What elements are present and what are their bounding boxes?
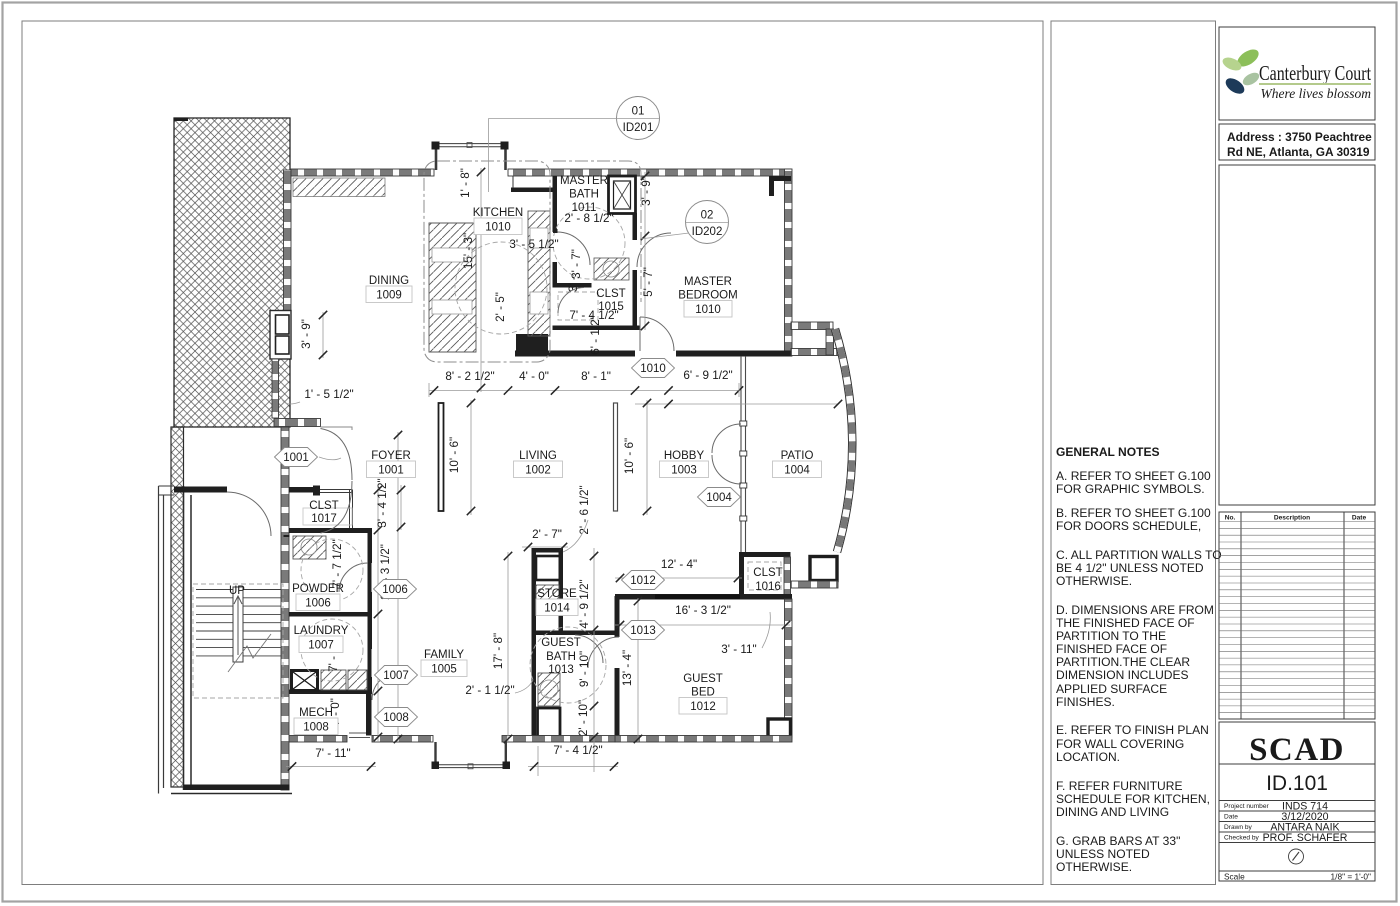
svg-text:6' - 1/2": 6' - 1/2" <box>589 315 602 355</box>
svg-text:1008: 1008 <box>383 712 409 724</box>
svg-text:4' - 9 1/2": 4' - 9 1/2" <box>578 579 591 628</box>
svg-text:1010: 1010 <box>485 222 511 234</box>
svg-text:ID201: ID201 <box>623 122 654 134</box>
svg-text:FOYER: FOYER <box>371 450 411 462</box>
svg-text:13' - 4": 13' - 4" <box>621 650 634 686</box>
svg-text:OTHERWISE.: OTHERWISE. <box>1056 574 1132 588</box>
svg-text:PARTITION.THE CLEAR: PARTITION.THE CLEAR <box>1056 655 1190 669</box>
svg-text:1011: 1011 <box>572 202 597 214</box>
svg-text:MASTER: MASTER <box>684 276 732 288</box>
svg-text:12' - 4": 12' - 4" <box>661 558 697 571</box>
svg-text:8' - 1": 8' - 1" <box>581 370 611 383</box>
svg-text:1005: 1005 <box>431 664 457 676</box>
svg-text:Address : 3750 Peachtree: Address : 3750 Peachtree <box>1227 130 1372 144</box>
svg-text:5' - 7": 5' - 7" <box>642 267 655 297</box>
svg-text:B. REFER TO SHEET G.100: B. REFER TO SHEET G.100 <box>1056 506 1211 520</box>
svg-text:BEDROOM: BEDROOM <box>678 290 737 302</box>
svg-text:FOR DOORS SCHEDULE,: FOR DOORS SCHEDULE, <box>1056 519 1201 533</box>
svg-text:1009: 1009 <box>376 290 402 302</box>
svg-text:GUEST: GUEST <box>683 673 723 685</box>
svg-text:1012: 1012 <box>690 701 716 713</box>
svg-text:1007: 1007 <box>383 670 409 682</box>
svg-text:No.: No. <box>1225 515 1236 522</box>
svg-text:3' - 9": 3' - 9" <box>300 319 313 349</box>
svg-text:Date: Date <box>1352 515 1367 522</box>
svg-text:3' - 11": 3' - 11" <box>721 643 756 656</box>
svg-text:SCHEDULE FOR KITCHEN,: SCHEDULE FOR KITCHEN, <box>1056 792 1210 806</box>
svg-text:LIVING: LIVING <box>519 450 557 462</box>
svg-text:Rd NE, Atlanta, GA 30319: Rd NE, Atlanta, GA 30319 <box>1227 145 1370 159</box>
svg-text:DINING: DINING <box>369 275 409 287</box>
svg-text:1/8" = 1'-0": 1/8" = 1'-0" <box>1331 872 1372 882</box>
svg-text:1' - 8": 1' - 8" <box>459 168 472 198</box>
svg-text:3' - 9": 3' - 9" <box>640 176 653 206</box>
svg-text:CLST: CLST <box>753 567 782 579</box>
svg-text:A. REFER TO SHEET G.100: A. REFER TO SHEET G.100 <box>1056 469 1211 483</box>
svg-text:D. DIMENSIONS ARE FROM: D. DIMENSIONS ARE FROM <box>1056 603 1214 617</box>
svg-text:G. GRAB BARS AT 33": G. GRAB BARS AT 33" <box>1056 834 1180 848</box>
svg-text:CLST: CLST <box>596 288 625 300</box>
svg-text:01: 01 <box>632 106 645 118</box>
svg-text:1015: 1015 <box>598 301 624 313</box>
svg-text:UP: UP <box>229 585 245 597</box>
svg-text:Canterbury Court: Canterbury Court <box>1259 61 1371 85</box>
svg-text:DIMENSION INCLUDES: DIMENSION INCLUDES <box>1056 668 1189 682</box>
svg-text:MECH: MECH <box>299 707 333 719</box>
svg-text:1010: 1010 <box>640 363 666 375</box>
svg-text:1013: 1013 <box>548 664 574 676</box>
svg-text:SCAD: SCAD <box>1249 732 1345 768</box>
svg-text:1004: 1004 <box>706 492 732 504</box>
svg-text:1006: 1006 <box>305 598 331 610</box>
svg-text:1012: 1012 <box>630 575 656 587</box>
svg-text:BATH: BATH <box>569 189 599 201</box>
svg-text:FAMILY: FAMILY <box>424 649 464 661</box>
svg-text:7' - 4 1/2": 7' - 4 1/2" <box>553 744 602 757</box>
svg-text:F. REFER FURNITURE: F. REFER FURNITURE <box>1056 779 1183 793</box>
svg-text:6' - 9 1/2": 6' - 9 1/2" <box>683 369 732 382</box>
svg-text:1014: 1014 <box>544 603 570 615</box>
svg-text:1003: 1003 <box>671 465 697 477</box>
svg-text:BE 4 1/2" UNLESS NOTED: BE 4 1/2" UNLESS NOTED <box>1056 561 1204 575</box>
svg-text:1013: 1013 <box>630 625 656 637</box>
svg-text:2' - 6 1/2": 2' - 6 1/2" <box>578 485 591 534</box>
svg-text:1006: 1006 <box>382 584 408 596</box>
svg-text:LOCATION.: LOCATION. <box>1056 750 1120 764</box>
svg-text:Drawn by: Drawn by <box>1224 824 1253 831</box>
svg-text:1017: 1017 <box>311 513 337 525</box>
svg-text:15' - 3": 15' - 3" <box>462 233 475 269</box>
svg-text:9' - 10": 9' - 10" <box>578 651 591 687</box>
svg-text:POWDER: POWDER <box>292 583 344 595</box>
svg-text:BED: BED <box>691 687 715 699</box>
svg-text:KITCHEN: KITCHEN <box>473 207 523 219</box>
svg-text:16' - 3 1/2": 16' - 3 1/2" <box>675 604 731 617</box>
svg-text:2' - 7": 2' - 7" <box>532 528 562 541</box>
svg-text:FOR WALL COVERING: FOR WALL COVERING <box>1056 737 1184 751</box>
svg-text:STORE: STORE <box>537 588 577 600</box>
svg-text:1016: 1016 <box>755 581 781 593</box>
svg-text:FOR GRAPHIC SYMBOLS.: FOR GRAPHIC SYMBOLS. <box>1056 482 1205 496</box>
svg-text:7' - 11": 7' - 11" <box>315 747 350 760</box>
svg-text:C. ALL PARTITION WALLS TO: C. ALL PARTITION WALLS TO <box>1056 548 1222 562</box>
svg-text:Description: Description <box>1274 515 1310 522</box>
svg-text:1001: 1001 <box>378 465 404 477</box>
svg-text:1004: 1004 <box>784 465 810 477</box>
svg-text:MASTER: MASTER <box>560 175 608 187</box>
svg-text:3' - 5 1/2": 3' - 5 1/2" <box>509 238 558 251</box>
svg-text:Scale: Scale <box>1224 872 1245 882</box>
svg-text:THE FINISHED FACE OF: THE FINISHED FACE OF <box>1056 616 1195 630</box>
svg-text:OTHERWISE.: OTHERWISE. <box>1056 860 1132 874</box>
svg-text:1010: 1010 <box>695 304 721 316</box>
svg-text:3' - 7": 3' - 7" <box>570 249 583 279</box>
svg-text:UNLESS NOTED: UNLESS NOTED <box>1056 847 1150 861</box>
svg-text:PATIO: PATIO <box>781 450 814 462</box>
svg-text:Where lives blossom: Where lives blossom <box>1261 86 1372 101</box>
svg-text:DINING AND LIVING: DINING AND LIVING <box>1056 805 1169 819</box>
svg-text:2' - 1 1/2": 2' - 1 1/2" <box>465 684 514 697</box>
svg-text:FINISHED FACE OF: FINISHED FACE OF <box>1056 642 1167 656</box>
svg-text:1' - 5 1/2": 1' - 5 1/2" <box>304 388 353 401</box>
svg-text:CLST: CLST <box>309 500 338 512</box>
svg-text:GUEST: GUEST <box>541 637 581 649</box>
svg-text:02: 02 <box>701 210 714 222</box>
svg-text:1007: 1007 <box>308 640 334 652</box>
svg-text:HOBBY: HOBBY <box>664 450 705 462</box>
svg-text:E. REFER TO FINISH PLAN: E. REFER TO FINISH PLAN <box>1056 723 1209 737</box>
svg-text:1008: 1008 <box>303 722 329 734</box>
svg-text:ID202: ID202 <box>692 226 723 238</box>
svg-text:ID.101: ID.101 <box>1266 772 1328 795</box>
svg-text:4' - 0": 4' - 0" <box>519 370 549 383</box>
svg-text:1002: 1002 <box>525 465 551 477</box>
svg-text:2' - 10": 2' - 10" <box>577 700 590 736</box>
svg-text:PARTITION TO THE: PARTITION TO THE <box>1056 629 1166 643</box>
svg-text:FINISHES.: FINISHES. <box>1056 695 1115 709</box>
svg-text:17' - 8": 17' - 8" <box>492 633 505 669</box>
svg-text:3' -: 3' - <box>567 276 580 292</box>
svg-text:GENERAL NOTES: GENERAL NOTES <box>1056 445 1160 459</box>
svg-text:BATH: BATH <box>546 651 576 663</box>
svg-text:LAUNDRY: LAUNDRY <box>294 625 349 637</box>
svg-text:Project number: Project number <box>1224 803 1270 810</box>
svg-text:PROF. SCHAFER: PROF. SCHAFER <box>1263 832 1348 844</box>
svg-text:10' - 6": 10' - 6" <box>623 438 636 474</box>
svg-text:Date: Date <box>1224 814 1238 821</box>
svg-text:1001: 1001 <box>283 452 309 464</box>
svg-text:7' - 7 1/2": 7' - 7 1/2" <box>331 539 344 588</box>
svg-text:Checked by: Checked by <box>1224 835 1260 842</box>
svg-text:3' - 4 1/2": 3' - 4 1/2" <box>376 478 389 527</box>
svg-text:2' - 5": 2' - 5" <box>494 292 507 322</box>
svg-text:10' - 6": 10' - 6" <box>448 437 461 473</box>
svg-text:8' - 2 1/2": 8' - 2 1/2" <box>445 370 494 383</box>
svg-text:APPLIED SURFACE: APPLIED SURFACE <box>1056 682 1167 696</box>
